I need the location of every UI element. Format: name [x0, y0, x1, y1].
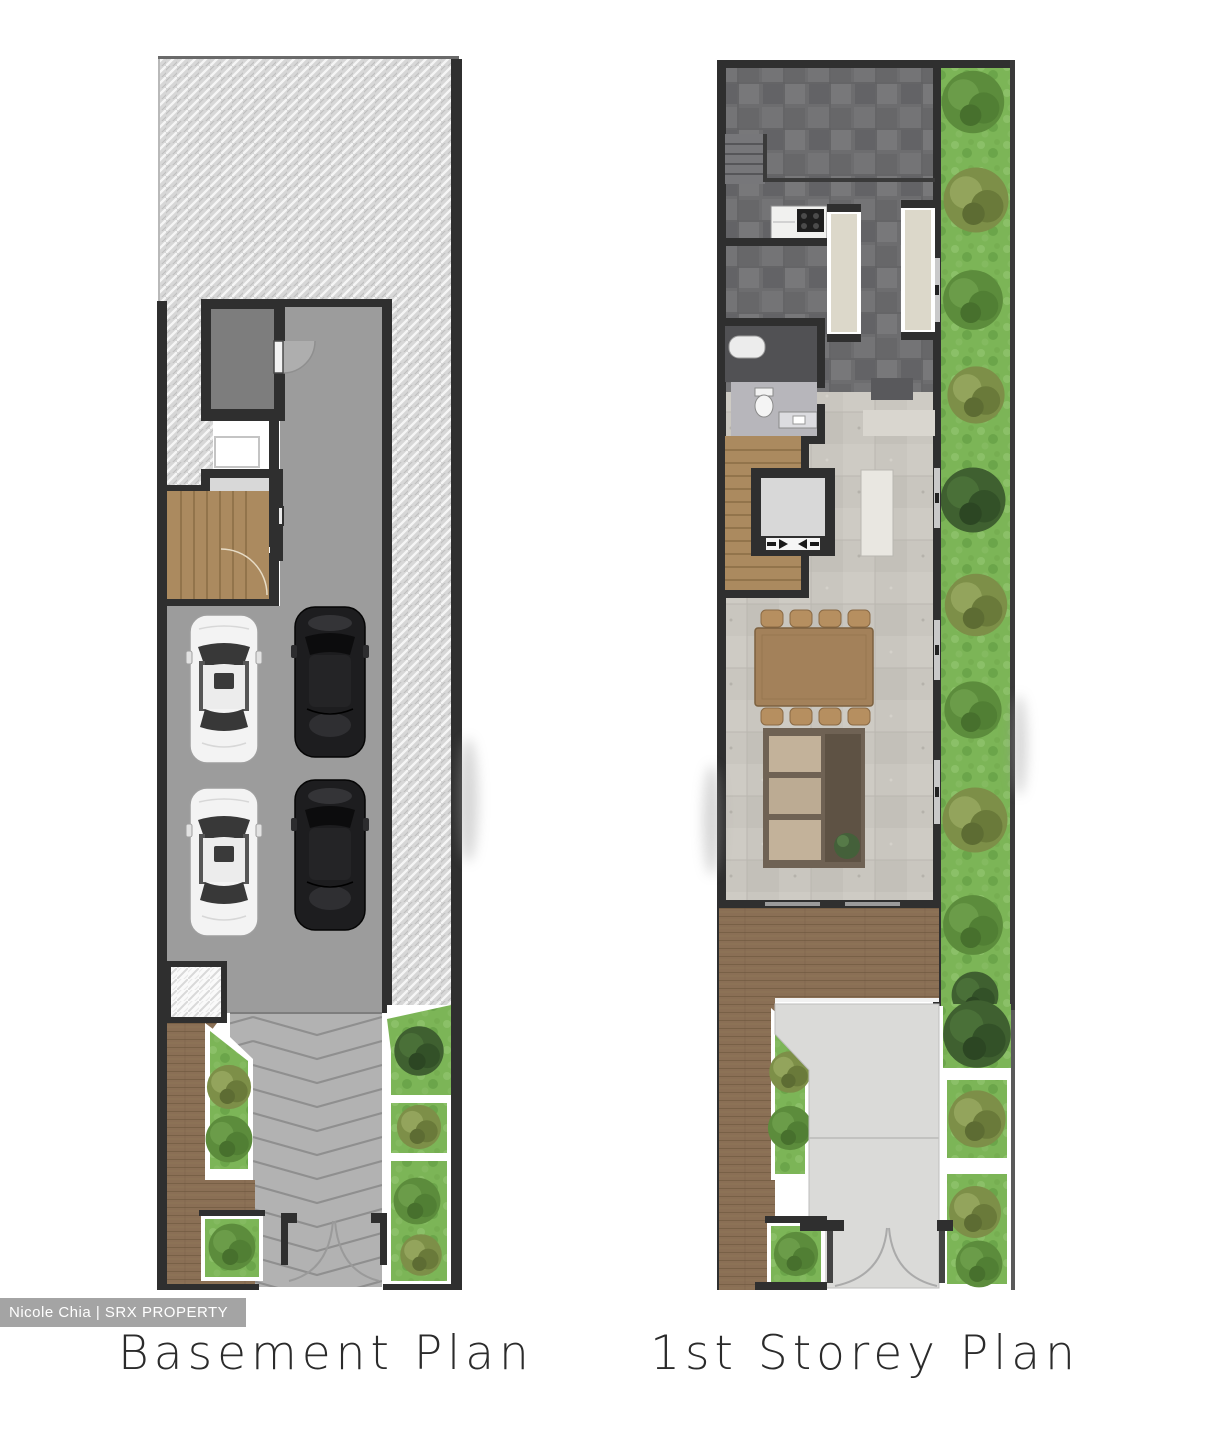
outer-wall-right [1010, 60, 1015, 1010]
entry-mat-light [863, 410, 935, 436]
garden-beds-right [943, 1000, 1011, 1288]
outer-wall-left [157, 301, 167, 1290]
bathtub-icon [729, 336, 765, 358]
bathroom [725, 318, 825, 444]
stove-icon [797, 209, 824, 232]
lift-icon [751, 468, 835, 556]
garden-strip [939, 66, 1011, 1018]
light-well-planter [901, 200, 935, 340]
house-wall-right [382, 301, 392, 1013]
entry-mat-dark [871, 378, 913, 400]
outer-wall-right-lower [1011, 1010, 1015, 1290]
potted-plant-icon [834, 833, 860, 859]
site-boundary-top [158, 56, 459, 59]
site-boundary-left-thin [158, 59, 160, 303]
black-car-icon [291, 780, 369, 930]
white-car-icon [186, 788, 262, 936]
outer-wall-right [451, 59, 462, 1290]
basement-store-room [201, 299, 285, 421]
dining-table-icon [755, 628, 873, 706]
sliding-door-wall [719, 900, 939, 908]
floor-plan-page: Nicole Chia | SRX PROPERTY Basement Plan… [0, 0, 1220, 1440]
toilet-icon [755, 388, 773, 417]
utility-box [165, 961, 227, 1023]
kitchen-island [861, 470, 893, 556]
first-storey-plan-label: 1st Storey Plan [648, 1322, 1082, 1386]
floor-plans-figure [0, 0, 1220, 1310]
kitchen-counter-icon [771, 206, 827, 240]
light-well-planter [827, 204, 861, 342]
boundary-bottom-left [167, 1284, 259, 1290]
watermark-text: Nicole Chia | SRX PROPERTY [9, 1304, 228, 1321]
first-storey-plan-figure [717, 60, 1015, 1290]
garden-beds-right [387, 1005, 451, 1287]
boundary-bottom-right [383, 1284, 459, 1290]
sofa-icon [763, 728, 865, 868]
wall-under-counter [719, 238, 829, 246]
black-car-icon [291, 607, 369, 757]
basement-plan-figure [157, 56, 462, 1290]
vanity-icon [779, 412, 817, 428]
basement-plan-label: Basement Plan [118, 1322, 504, 1386]
entry-planter [199, 1210, 265, 1281]
fixture-sketch [215, 437, 259, 467]
outer-wall-top [717, 60, 1013, 68]
white-car-icon [186, 615, 262, 763]
